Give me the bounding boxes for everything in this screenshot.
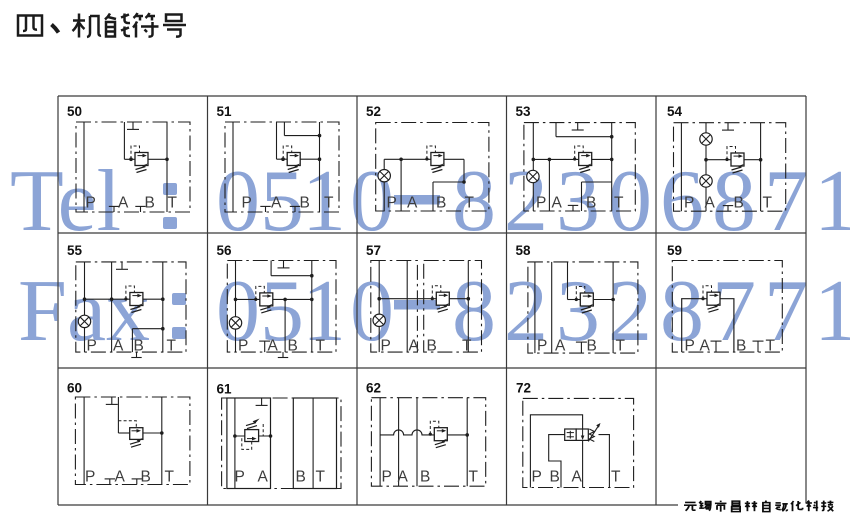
svg-text:T: T	[165, 469, 175, 486]
svg-text:T: T	[611, 469, 621, 486]
svg-text:53: 53	[516, 104, 532, 119]
svg-text:1: 1	[814, 263, 850, 360]
svg-text:T: T	[616, 338, 626, 355]
svg-text:P: P	[238, 338, 248, 355]
svg-text:A: A	[113, 338, 124, 355]
svg-text:51: 51	[217, 104, 233, 119]
svg-text:B: B	[436, 195, 446, 212]
svg-text:A: A	[572, 469, 583, 486]
svg-text:62: 62	[366, 381, 381, 396]
svg-text:B: B	[587, 338, 597, 355]
svg-text:Tel: Tel	[10, 153, 121, 250]
svg-text:B: B	[736, 338, 746, 355]
svg-text:T: T	[462, 338, 472, 355]
svg-text:1: 1	[814, 153, 850, 250]
svg-text:A: A	[552, 195, 563, 212]
svg-text:P: P	[242, 195, 252, 212]
svg-text:A: A	[705, 195, 716, 212]
svg-text:B: B	[300, 195, 310, 212]
svg-text:A: A	[409, 338, 420, 355]
svg-text:P: P	[536, 195, 546, 212]
svg-text:5: 5	[260, 153, 304, 250]
svg-text:B: B	[288, 338, 298, 355]
svg-text:A: A	[258, 469, 269, 486]
svg-text:B: B	[134, 338, 144, 355]
svg-text:P: P	[387, 195, 397, 212]
svg-text:A: A	[271, 195, 282, 212]
svg-text:A: A	[268, 338, 279, 355]
svg-text:P: P	[85, 469, 95, 486]
svg-text:P: P	[235, 469, 245, 486]
svg-text:P: P	[86, 195, 96, 212]
svg-text:52: 52	[366, 104, 381, 119]
svg-text:B: B	[145, 195, 155, 212]
svg-text:A: A	[700, 338, 711, 355]
svg-text:A: A	[398, 469, 409, 486]
svg-text:B: B	[420, 469, 430, 486]
svg-text:B: B	[141, 469, 151, 486]
svg-text:T: T	[766, 338, 776, 355]
svg-text:55: 55	[67, 243, 83, 258]
svg-text:T: T	[324, 195, 334, 212]
svg-text:57: 57	[366, 243, 381, 258]
svg-text:T: T	[469, 469, 479, 486]
svg-text:T: T	[167, 338, 177, 355]
svg-text:T: T	[316, 469, 326, 486]
svg-text:60: 60	[67, 381, 82, 396]
svg-text:P: P	[685, 338, 695, 355]
svg-text:61: 61	[217, 382, 233, 397]
svg-text:P: P	[382, 469, 392, 486]
svg-text:B: B	[296, 469, 306, 486]
svg-text:A: A	[118, 195, 129, 212]
svg-text:P: P	[87, 338, 97, 355]
svg-text:T: T	[168, 195, 178, 212]
svg-text:B: B	[734, 195, 744, 212]
svg-text:0: 0	[216, 153, 260, 250]
svg-text:A: A	[407, 195, 418, 212]
svg-text:P: P	[532, 469, 542, 486]
svg-text:P: P	[684, 195, 694, 212]
svg-text:A: A	[555, 338, 566, 355]
svg-text:A: A	[115, 469, 126, 486]
svg-text:72: 72	[516, 381, 531, 396]
svg-text:P: P	[537, 338, 547, 355]
svg-text:B: B	[427, 338, 437, 355]
svg-text:8: 8	[452, 263, 496, 360]
svg-text:P: P	[381, 338, 391, 355]
svg-text:B: B	[550, 469, 560, 486]
svg-text:59: 59	[667, 243, 682, 258]
svg-text:56: 56	[217, 243, 233, 258]
svg-text:58: 58	[516, 243, 532, 258]
svg-text:T: T	[316, 338, 326, 355]
svg-text:T: T	[465, 195, 475, 212]
svg-text:T: T	[614, 195, 624, 212]
svg-text:T: T	[763, 195, 773, 212]
svg-text:54: 54	[667, 104, 683, 119]
svg-text:B: B	[586, 195, 596, 212]
svg-text:50: 50	[67, 104, 82, 119]
svg-text:6: 6	[660, 153, 704, 250]
